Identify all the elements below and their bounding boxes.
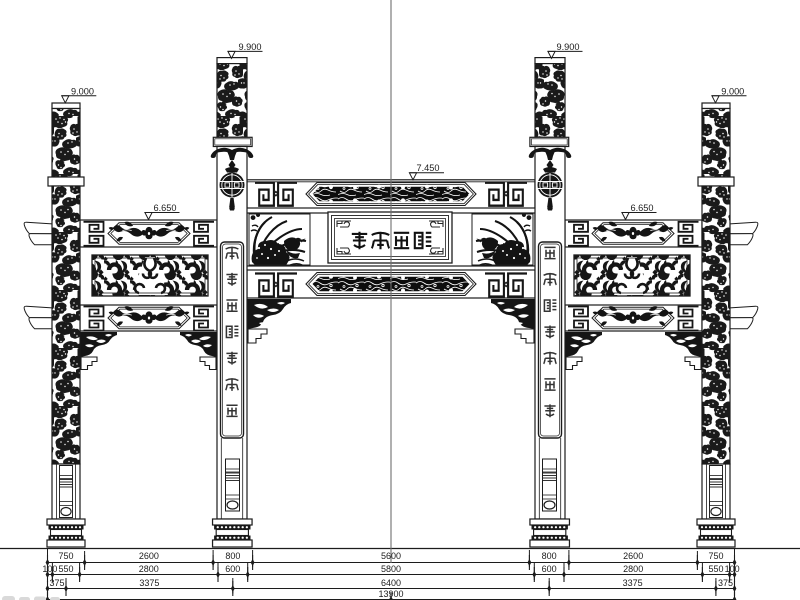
- svg-text:100: 100: [42, 564, 57, 574]
- svg-text:2800: 2800: [139, 564, 159, 574]
- svg-text:800: 800: [225, 551, 240, 561]
- svg-text:750: 750: [58, 551, 73, 561]
- svg-text:375: 375: [49, 578, 64, 588]
- svg-text:2600: 2600: [139, 551, 159, 561]
- svg-text:5800: 5800: [381, 564, 401, 574]
- svg-text:550: 550: [58, 564, 73, 574]
- svg-text:9.000: 9.000: [71, 86, 94, 96]
- svg-text:6.650: 6.650: [631, 203, 654, 213]
- svg-text:9.900: 9.900: [239, 42, 262, 52]
- svg-text:6400: 6400: [381, 578, 401, 588]
- svg-text:3375: 3375: [623, 578, 643, 588]
- svg-text:800: 800: [542, 551, 557, 561]
- svg-text:2800: 2800: [623, 564, 643, 574]
- svg-text:100: 100: [725, 564, 740, 574]
- svg-text:13900: 13900: [378, 589, 403, 599]
- svg-text:600: 600: [225, 564, 240, 574]
- svg-text:375: 375: [718, 578, 733, 588]
- svg-text:9.000: 9.000: [721, 86, 744, 96]
- svg-text:750: 750: [708, 551, 723, 561]
- svg-text:6.650: 6.650: [154, 203, 177, 213]
- svg-text:2600: 2600: [623, 551, 643, 561]
- svg-text:600: 600: [542, 564, 557, 574]
- svg-text:7.450: 7.450: [417, 163, 440, 173]
- svg-text:9.900: 9.900: [557, 42, 580, 52]
- svg-text:550: 550: [708, 564, 723, 574]
- svg-text:3375: 3375: [139, 578, 159, 588]
